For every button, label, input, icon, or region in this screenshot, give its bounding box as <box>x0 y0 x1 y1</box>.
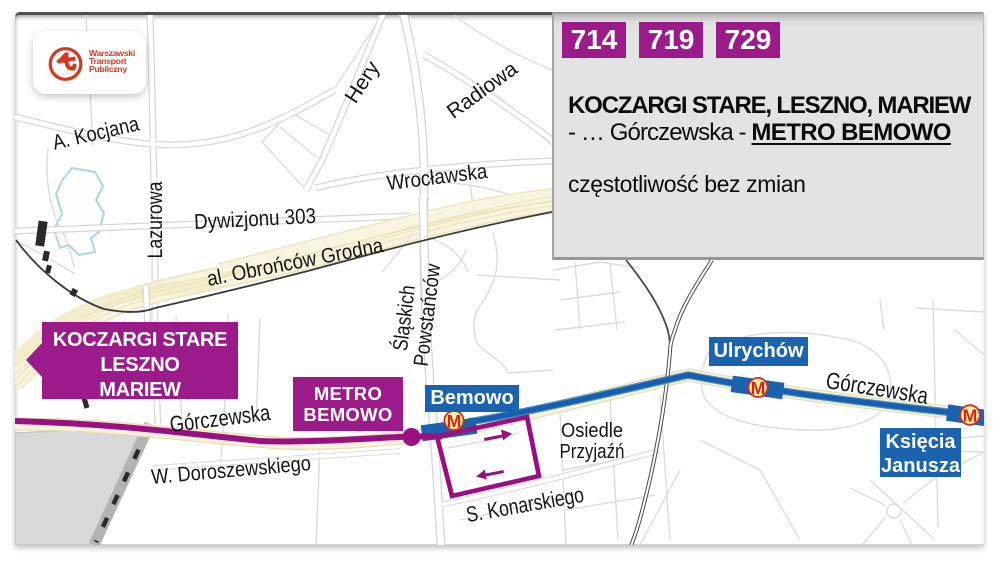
svg-text:Osiedle: Osiedle <box>561 420 623 442</box>
svg-text:Przyjaźń: Przyjaźń <box>560 441 625 463</box>
svg-text:Hery: Hery <box>341 57 385 108</box>
svg-text:Lazurowa: Lazurowa <box>144 181 167 258</box>
svg-text:M: M <box>751 378 766 398</box>
svg-text:A. Kocjana: A. Kocjana <box>50 112 141 154</box>
svg-text:M: M <box>963 406 978 426</box>
svg-text:W. Doroszewskiego: W. Doroszewskiego <box>150 452 311 489</box>
svg-text:Dywizjonu 303: Dywizjonu 303 <box>193 204 316 234</box>
svg-text:Wrocławska: Wrocławska <box>386 160 489 195</box>
svg-text:M: M <box>447 411 462 431</box>
svg-text:al. Obrońców Grodna: al. Obrońców Grodna <box>205 234 385 291</box>
